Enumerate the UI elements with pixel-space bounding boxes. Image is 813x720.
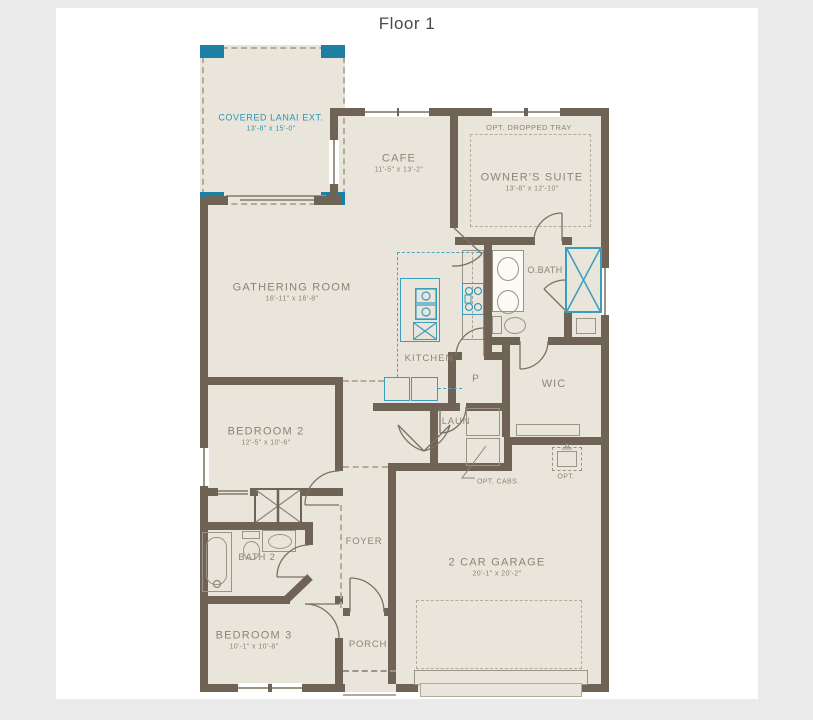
door-arc: [520, 341, 548, 369]
door-arc: [452, 254, 482, 266]
room-label-bath2: BATH 2: [238, 552, 275, 564]
sink-basin: [416, 289, 436, 303]
door-arc: [544, 280, 565, 289]
sink-basin: [416, 305, 436, 319]
sink-drain: [422, 308, 430, 316]
hall-door-leaf: [398, 425, 424, 451]
room-label-foyer: FOYER: [346, 536, 383, 548]
opt-cabs-leader: [462, 446, 486, 478]
burner: [475, 304, 482, 311]
opt-cabs-label: OPT. CABS.: [477, 479, 520, 486]
door-leaf: [454, 228, 482, 254]
room-label-obath: O.BATH: [527, 265, 562, 277]
angled-wall: [286, 577, 310, 600]
range-control: [465, 295, 471, 303]
room-label-pantry: P: [472, 373, 480, 386]
room-label-laundry: LAUN: [442, 416, 471, 428]
room-label-gathering: GATHERING ROOM 16'-11" x 16'-8": [233, 280, 352, 303]
sink-drain: [422, 292, 430, 300]
room-label-owners-suite: OWNER'S SUITE 13'-8" x 12'-10": [481, 170, 584, 193]
door-arc: [456, 328, 484, 356]
room-label-lanai: COVERED LANAI EXT. 13'-8" x 15'-0": [218, 113, 323, 134]
door-arc: [534, 213, 562, 241]
room-label-kitchen: KITCHEN: [405, 353, 454, 365]
dishwasher-x: [414, 323, 436, 339]
opt-sink-faucet: [566, 445, 569, 448]
opt-dropped-tray-label: OPT. DROPPED TRAY: [486, 123, 572, 133]
burner: [466, 288, 473, 295]
front-door-arc: [350, 578, 384, 612]
room-label-wic: WIC: [542, 377, 566, 391]
room-label-bedroom3: BEDROOM 3 10'-1" x 10'-8": [216, 628, 293, 651]
room-label-bedroom2: BEDROOM 2 12'-5" x 10'-6": [228, 424, 305, 447]
door-arc: [305, 604, 339, 638]
room-label-cafe: CAFE 11'-5" x 13'-2": [375, 151, 424, 174]
room-label-garage: 2 CAR GARAGE 20'-1" x 20'-2": [449, 555, 546, 578]
door-arc: [277, 545, 309, 577]
shower-x: [567, 249, 600, 311]
floorplan-page: Floor 1: [0, 0, 813, 720]
tub-drain: [214, 581, 221, 588]
room-label-porch: PORCH: [349, 639, 387, 651]
opt-sink-label: OPT.: [557, 472, 574, 481]
burner: [475, 288, 482, 295]
door-leaf: [544, 289, 565, 310]
hall-door-leaf: [424, 425, 450, 451]
door-arc: [305, 471, 339, 505]
burner: [466, 304, 473, 311]
